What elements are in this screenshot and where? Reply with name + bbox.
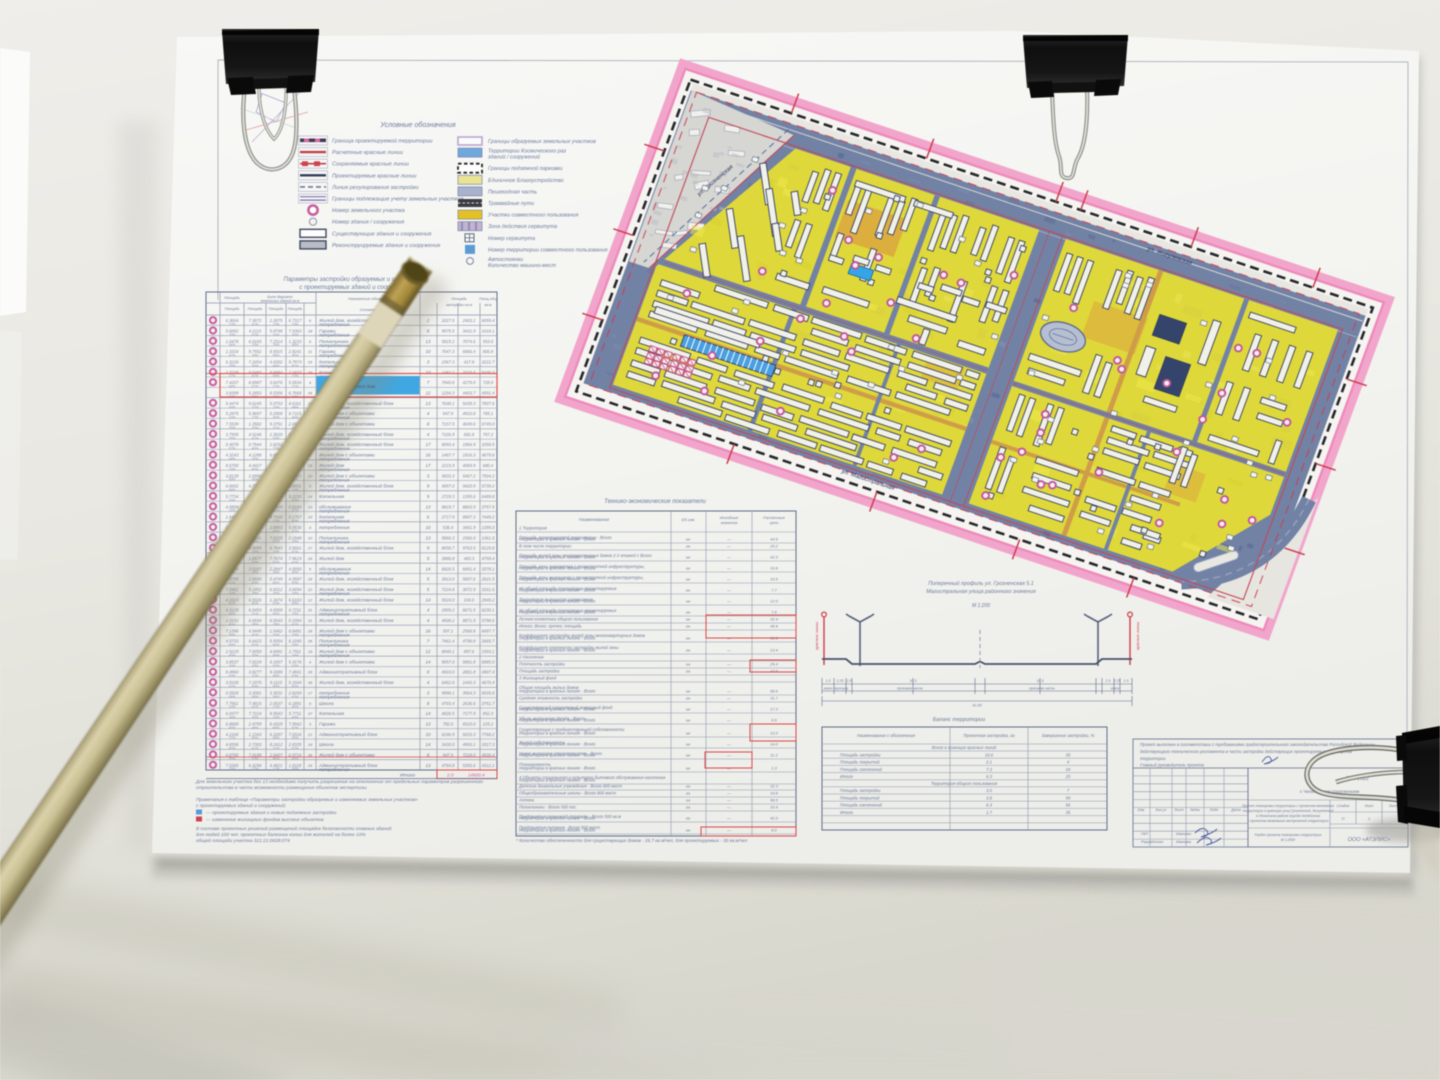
svg-text:6489.8: 6489.8 bbox=[482, 494, 495, 499]
svg-text:21%: 21% bbox=[272, 747, 280, 751]
svg-text:28: 28 bbox=[307, 639, 313, 644]
svg-text:П: П bbox=[1342, 817, 1345, 821]
svg-text:23%: 23% bbox=[291, 633, 299, 637]
svg-text:23%: 23% bbox=[272, 716, 280, 720]
svg-text:30%: 30% bbox=[252, 716, 259, 720]
svg-text:8.0: 8.0 bbox=[771, 828, 777, 833]
svg-text:10: 10 bbox=[425, 525, 431, 530]
svg-text:Главный руководитель проекта: Главный руководитель проекта bbox=[1140, 763, 1205, 768]
svg-text:42%: 42% bbox=[292, 529, 299, 533]
svg-text:35: 35 bbox=[308, 391, 313, 396]
svg-text:72%: 72% bbox=[252, 767, 259, 771]
svg-text:Личная косметика общего пользо: Личная косметика общего пользования bbox=[518, 617, 599, 622]
svg-text:территории в красных линиях -: территории в красных линиях - Всего bbox=[519, 778, 596, 783]
svg-text:78%: 78% bbox=[229, 364, 236, 368]
svg-text:2940.2: 2940.2 bbox=[481, 597, 495, 602]
svg-text:Жилой дом, хозяйственный блок: Жилой дом, хозяйственный блок bbox=[318, 679, 394, 686]
svg-text:8871.9: 8871.9 bbox=[463, 618, 476, 623]
svg-text:79%: 79% bbox=[229, 333, 236, 337]
svg-text:4: 4 bbox=[427, 680, 430, 685]
svg-text:9057.0: 9057.0 bbox=[442, 659, 455, 664]
svg-text:Существующие здания и сооружен: Существующие здания и сооружения bbox=[332, 231, 431, 237]
svg-text:2.5: 2.5 bbox=[846, 679, 852, 683]
svg-text:9: 9 bbox=[427, 494, 430, 499]
svg-text:58%: 58% bbox=[229, 695, 236, 699]
svg-text:45%: 45% bbox=[292, 757, 299, 761]
svg-text:14: 14 bbox=[425, 711, 431, 716]
svg-text:8125.8: 8125.8 bbox=[482, 546, 495, 551]
svg-text:7047.3: 7047.3 bbox=[442, 349, 455, 354]
svg-text:63%: 63% bbox=[292, 695, 299, 699]
svg-text:41%: 41% bbox=[252, 323, 259, 327]
svg-text:6985.0: 6985.0 bbox=[482, 659, 495, 664]
svg-text:1059.5: 1059.5 bbox=[482, 442, 495, 447]
svg-text:28: 28 bbox=[307, 628, 313, 633]
svg-text:5739.2: 5739.2 bbox=[482, 484, 495, 489]
svg-text:32.3: 32.3 bbox=[770, 784, 779, 789]
svg-text:1566.0: 1566.0 bbox=[463, 535, 476, 540]
svg-text:42.0: 42.0 bbox=[770, 816, 779, 821]
svg-text:для людей 100 чел. проектных б: для людей 100 чел. проектных балконах ко… bbox=[196, 831, 366, 838]
svg-text:25: 25 bbox=[1065, 774, 1071, 779]
svg-text:53%: 53% bbox=[252, 757, 259, 761]
svg-text:48%: 48% bbox=[252, 726, 259, 730]
svg-text:31.7: 31.7 bbox=[770, 696, 779, 701]
svg-text:2 Население: 2 Население bbox=[518, 655, 544, 660]
svg-text:Площадь: Площадь bbox=[451, 297, 467, 301]
svg-text:6059.4: 6059.4 bbox=[482, 318, 495, 323]
svg-text:2.25: 2.25 bbox=[1113, 679, 1121, 683]
svg-text:58%: 58% bbox=[273, 695, 280, 699]
svg-text:4: 4 bbox=[427, 618, 430, 623]
svg-text:3564.3: 3564.3 bbox=[463, 690, 476, 695]
svg-text:Поликлиники - Всего 500 пос.: Поликлиники - Всего 500 пос. bbox=[519, 805, 577, 810]
svg-text:11.2: 11.2 bbox=[770, 753, 778, 758]
svg-text:3317.3: 3317.3 bbox=[482, 742, 495, 747]
svg-text:цели: цели bbox=[770, 520, 780, 525]
svg-text:Баланс территории: Баланс территории bbox=[933, 717, 986, 723]
svg-text:680.4: 680.4 bbox=[483, 463, 494, 468]
svg-text:Гаражи: Гаражи bbox=[319, 721, 336, 727]
svg-text:10: 10 bbox=[425, 732, 431, 737]
svg-text:27: 27 bbox=[307, 546, 313, 551]
svg-text:4403.7: 4403.7 bbox=[463, 391, 476, 396]
svg-text:14: 14 bbox=[425, 566, 431, 571]
svg-text:10: 10 bbox=[425, 349, 431, 354]
svg-text:Разработал: Разработал bbox=[1141, 840, 1164, 844]
svg-text:Площадь озеленений: Площадь озеленений bbox=[840, 767, 883, 772]
svg-text:Площадь: Площадь bbox=[288, 307, 303, 311]
svg-text:21%: 21% bbox=[291, 385, 299, 389]
svg-text:потребления: потребления bbox=[319, 343, 350, 349]
svg-text:7940.8: 7940.8 bbox=[442, 380, 455, 385]
svg-text:5866.3: 5866.3 bbox=[442, 535, 455, 540]
svg-text:территории в красных линиях -: территории в красных линиях - Всего bbox=[519, 577, 596, 582]
svg-text:19%: 19% bbox=[292, 654, 299, 658]
svg-text:красные линии: красные линии bbox=[1135, 621, 1140, 650]
svg-text:Трамвайные пути: Трамвайные пути bbox=[488, 200, 534, 207]
svg-text:19%: 19% bbox=[292, 540, 299, 544]
svg-text:82%: 82% bbox=[292, 726, 299, 730]
svg-text:58%: 58% bbox=[292, 602, 299, 606]
svg-text:Проект выполнен в соответствии: Проект выполнен в соответствии с требова… bbox=[1140, 742, 1376, 747]
svg-text:7807.6: 7807.6 bbox=[482, 401, 495, 406]
svg-text:6196.9: 6196.9 bbox=[442, 732, 455, 737]
svg-text:553.6: 553.6 bbox=[483, 339, 494, 344]
svg-text:Площадь покрытий: Площадь покрытий bbox=[840, 795, 880, 800]
svg-text:20.2: 20.2 bbox=[769, 544, 779, 549]
svg-text:6.5: 6.5 bbox=[771, 718, 777, 723]
svg-text:2801.8: 2801.8 bbox=[462, 670, 476, 675]
svg-text:Площадь: Площадь bbox=[225, 307, 240, 311]
svg-text:8093.4: 8093.4 bbox=[442, 442, 455, 447]
svg-text:42.3: 42.3 bbox=[770, 555, 779, 560]
svg-text:41%: 41% bbox=[292, 560, 299, 564]
svg-text:Жилой дом с объектами: Жилой дом с объектами bbox=[318, 752, 375, 759]
svg-text:Лист: Лист bbox=[1364, 804, 1374, 808]
svg-text:536.4: 536.4 bbox=[443, 525, 454, 530]
svg-text:Для земельного участка без 13: Для земельного участка без 13 необходимо… bbox=[195, 779, 483, 785]
svg-text:32%: 32% bbox=[252, 405, 259, 409]
svg-text:Наименование с обозначения: Наименование с обозначения bbox=[857, 733, 916, 738]
svg-text:3222.7: 3222.7 bbox=[482, 360, 495, 365]
svg-text:70%: 70% bbox=[229, 767, 236, 771]
svg-text:4: 4 bbox=[427, 432, 430, 437]
svg-text:потребления: потребления bbox=[319, 525, 350, 531]
svg-text:1984.9: 1984.9 bbox=[463, 442, 476, 447]
svg-text:38%: 38% bbox=[252, 622, 259, 626]
svg-text:8940.1: 8940.1 bbox=[442, 649, 455, 654]
svg-text:1204.3: 1204.3 bbox=[442, 391, 455, 396]
svg-text:территории в красных линиях -: территории в красных линиях - Всего bbox=[519, 599, 596, 604]
svg-text:81%: 81% bbox=[292, 364, 299, 368]
svg-text:3431.9: 3431.9 bbox=[463, 329, 476, 334]
svg-text:1.3: 1.3 bbox=[771, 766, 777, 771]
svg-text:потребления: потребления bbox=[319, 488, 350, 494]
svg-text:2.1: 2.1 bbox=[985, 760, 992, 765]
svg-text:7.6: 7.6 bbox=[771, 610, 777, 615]
svg-text:68%: 68% bbox=[252, 695, 259, 699]
svg-text:территории в красных линиях -: территории в красных линиях - Всего bbox=[519, 648, 596, 653]
svg-text:Площадь покрытий: Площадь покрытий bbox=[840, 760, 880, 765]
svg-text:потребления: потребления bbox=[319, 508, 350, 514]
svg-text:Жилой дом, хозяйственный блок: Жилой дом, хозяйственный блок bbox=[318, 596, 394, 603]
svg-text:4591.4: 4591.4 bbox=[482, 391, 495, 396]
svg-text:13.4: 13.4 bbox=[770, 648, 779, 653]
svg-text:89%: 89% bbox=[273, 685, 280, 689]
svg-text:3886.8: 3886.8 bbox=[442, 556, 455, 561]
svg-text:1027.5: 1027.5 bbox=[442, 318, 455, 323]
svg-text:50%: 50% bbox=[292, 581, 299, 585]
svg-text:Пешеходная часть: Пешеходная часть bbox=[488, 189, 537, 195]
svg-text:Жилой дом, хозяйственный блок: Жилой дом, хозяйственный блок bbox=[318, 617, 394, 624]
svg-text:Итого: Итого bbox=[840, 810, 854, 815]
svg-text:14: 14 bbox=[425, 659, 431, 664]
svg-text:27%: 27% bbox=[272, 385, 280, 389]
svg-text:852.3: 852.3 bbox=[483, 711, 494, 716]
svg-text:8819.7: 8819.7 bbox=[442, 504, 455, 509]
svg-text:8497.7: 8497.7 bbox=[482, 628, 495, 633]
svg-text:104.0: 104.0 bbox=[464, 597, 475, 602]
svg-text:Зона действия сервитута: Зона действия сервитута bbox=[488, 223, 557, 230]
svg-text:16: 16 bbox=[308, 742, 313, 747]
svg-text:12%: 12% bbox=[273, 705, 280, 709]
svg-text:10.5: 10.5 bbox=[1037, 679, 1044, 683]
svg-text:69%: 69% bbox=[252, 685, 259, 689]
svg-text:86%: 86% bbox=[273, 757, 280, 761]
svg-text:40%: 40% bbox=[252, 447, 259, 451]
svg-text:4759.4: 4759.4 bbox=[482, 556, 495, 561]
svg-text:19: 19 bbox=[308, 649, 313, 654]
svg-text:34: 34 bbox=[1066, 767, 1071, 772]
svg-text:1487.7: 1487.7 bbox=[442, 453, 455, 458]
svg-text:17: 17 bbox=[308, 690, 313, 695]
svg-text:Наименование: Наименование bbox=[579, 517, 610, 522]
svg-text:* Количество обеспеченности дл: * Количество обеспеченности для существу… bbox=[516, 838, 748, 843]
svg-text:58%: 58% bbox=[273, 354, 280, 358]
svg-text:64%: 64% bbox=[229, 385, 236, 389]
svg-text:Плотность застройки: Плотность застройки bbox=[519, 662, 566, 667]
svg-text:16.6: 16.6 bbox=[770, 566, 779, 571]
svg-text:3378.1: 3378.1 bbox=[482, 566, 495, 571]
svg-text:7461.4: 7461.4 bbox=[442, 639, 455, 644]
svg-text:8907.3: 8907.3 bbox=[463, 515, 476, 520]
svg-text:Школа: Школа bbox=[319, 701, 334, 707]
svg-text:9420.9: 9420.9 bbox=[463, 484, 476, 489]
svg-text:территории в красных линиях -: территории в красных линиях - Всего bbox=[519, 742, 596, 747]
svg-text:Всего в границах красных линий: Всего в границах красных линий bbox=[932, 745, 997, 750]
svg-text:Номер земельного участка: Номер земельного участка bbox=[332, 208, 405, 214]
svg-text:7449.2: 7449.2 bbox=[482, 515, 495, 520]
svg-text:2.5: 2.5 bbox=[1105, 679, 1111, 683]
svg-text:40%: 40% bbox=[292, 705, 299, 709]
svg-text:60%: 60% bbox=[292, 685, 299, 689]
svg-text:территории в красных линиях -: территории в красных линиях - Всего bbox=[519, 588, 596, 593]
svg-text:897.6: 897.6 bbox=[464, 649, 475, 654]
svg-text:18: 18 bbox=[308, 556, 313, 561]
svg-text:6826.5: 6826.5 bbox=[442, 566, 455, 571]
svg-text:Лист: Лист bbox=[1173, 808, 1183, 812]
svg-text:2403.1: 2403.1 bbox=[462, 318, 476, 323]
svg-text:44%: 44% bbox=[273, 364, 280, 368]
svg-text:2717.9: 2717.9 bbox=[441, 515, 455, 520]
svg-text:8451.4: 8451.4 bbox=[463, 566, 476, 571]
svg-text:76%: 76% bbox=[229, 436, 236, 440]
svg-text:49%: 49% bbox=[292, 416, 299, 420]
svg-text:— изменение жилищных фондов вы: — изменение жилищных фондов высоких объе… bbox=[205, 817, 324, 823]
svg-text:26: 26 bbox=[307, 763, 313, 768]
svg-text:67%: 67% bbox=[292, 747, 299, 751]
svg-text:Изм: Изм bbox=[1138, 808, 1145, 812]
svg-text:13: 13 bbox=[425, 339, 431, 344]
svg-text:2.0: 2.0 bbox=[446, 773, 454, 778]
svg-text:31: 31 bbox=[308, 618, 312, 623]
svg-text:2621.5: 2621.5 bbox=[481, 577, 495, 582]
svg-text:Площадь озеленений: Площадь озеленений bbox=[840, 803, 883, 808]
svg-text:47%: 47% bbox=[229, 354, 236, 358]
svg-text:Итого: Итого bbox=[400, 773, 415, 779]
svg-text:5524.0: 5524.0 bbox=[442, 597, 455, 602]
svg-text:Условные обозначения: Условные обозначения bbox=[379, 121, 456, 129]
svg-text:32.4: 32.4 bbox=[770, 617, 779, 622]
svg-text:потребления: потребления bbox=[319, 591, 350, 597]
svg-text:Жилой дом, хозяйственный блок: Жилой дом, хозяйственный блок bbox=[318, 576, 394, 583]
svg-text:682.8: 682.8 bbox=[464, 432, 475, 437]
svg-text:4993.1: 4993.1 bbox=[463, 742, 476, 747]
svg-text:4679.6: 4679.6 bbox=[482, 453, 495, 458]
svg-text:5355.6: 5355.6 bbox=[463, 763, 476, 768]
svg-text:16: 16 bbox=[425, 628, 431, 633]
svg-text:17: 17 bbox=[425, 463, 431, 468]
svg-text:Иванова: Иванова bbox=[1176, 832, 1191, 836]
svg-text:10%: 10% bbox=[273, 633, 280, 637]
svg-text:37: 37 bbox=[308, 711, 313, 716]
svg-text:Границы подземной парковки: Границы подземной парковки bbox=[488, 165, 563, 172]
svg-text:81%: 81% bbox=[292, 550, 299, 554]
svg-text:16: 16 bbox=[425, 453, 431, 458]
svg-text:72%: 72% bbox=[229, 736, 236, 740]
svg-text:64%: 64% bbox=[229, 457, 236, 461]
svg-text:1395.6: 1395.6 bbox=[463, 494, 476, 499]
svg-text:19%: 19% bbox=[229, 509, 236, 513]
svg-text:газон тротуар: газон тротуар bbox=[824, 686, 849, 690]
svg-text:Участки совместного пользовани: Участки совместного пользования bbox=[487, 213, 579, 219]
svg-text:30%: 30% bbox=[292, 333, 299, 337]
svg-text:территории: территории bbox=[1140, 756, 1166, 761]
svg-text:54%: 54% bbox=[229, 343, 236, 347]
svg-text:63%: 63% bbox=[273, 602, 280, 606]
svg-text:2729.3: 2729.3 bbox=[441, 494, 455, 499]
svg-text:6749.0: 6749.0 bbox=[482, 422, 495, 427]
svg-text:43.6: 43.6 bbox=[770, 669, 779, 674]
svg-text:417.8: 417.8 bbox=[464, 360, 475, 365]
svg-text:Площадь: Площадь bbox=[269, 307, 284, 311]
svg-text:В составе проектных решений ра: В составе проектных решений размещений п… bbox=[196, 825, 392, 832]
svg-text:территории в красных линиях -: территории в красных линиях - Всего bbox=[519, 766, 596, 771]
svg-text:потребления: потребления bbox=[319, 767, 350, 773]
svg-text:72%: 72% bbox=[273, 447, 280, 451]
svg-text:Номер территории совместного п: Номер территории совместного пользования bbox=[488, 247, 608, 253]
svg-text:10%: 10% bbox=[273, 333, 280, 337]
svg-text:Проект планировки территории с: Проект планировки территории с проектом … bbox=[1242, 804, 1334, 808]
svg-text:18%: 18% bbox=[252, 664, 259, 668]
svg-text:1395.0: 1395.0 bbox=[482, 525, 495, 530]
svg-text:общей площади участка 321:21:0: общей площади участка 321:21:0028:074 bbox=[196, 837, 290, 844]
svg-text:69%: 69% bbox=[229, 643, 236, 647]
svg-text:14: 14 bbox=[425, 597, 431, 602]
svg-text:потребления: потребления bbox=[319, 632, 350, 638]
svg-text:5807.6: 5807.6 bbox=[463, 577, 476, 582]
svg-text:Площадь застройки: Площадь застройки bbox=[840, 788, 881, 793]
svg-text:19%: 19% bbox=[229, 467, 236, 471]
svg-text:39%: 39% bbox=[252, 354, 259, 358]
svg-text:23%: 23% bbox=[272, 323, 280, 327]
svg-text:2566.8: 2566.8 bbox=[462, 628, 476, 633]
svg-text:51%: 51% bbox=[252, 612, 259, 616]
svg-text:территории в красных линиях -: территории в красных линиях - Всего bbox=[519, 816, 596, 821]
svg-text:1.5: 1.5 bbox=[1124, 679, 1129, 683]
svg-text:59%: 59% bbox=[229, 633, 236, 637]
svg-text:проезжая часть: проезжая часть bbox=[1029, 686, 1055, 690]
svg-text:территории в красных линиях -: территории в красных линиях - Всего bbox=[519, 636, 596, 641]
svg-text:застройки кв.м: застройки кв.м bbox=[445, 303, 473, 307]
svg-text:56%: 56% bbox=[292, 354, 299, 358]
svg-text:80%: 80% bbox=[252, 602, 259, 606]
svg-text:9: 9 bbox=[427, 484, 430, 489]
svg-text:Количество машино-мест: Количество машино-мест bbox=[488, 263, 556, 269]
svg-text:90%: 90% bbox=[229, 726, 236, 730]
svg-text:4784.8: 4784.8 bbox=[442, 763, 455, 768]
svg-text:Площадь застройки: Площадь застройки bbox=[519, 669, 560, 674]
svg-text:8: 8 bbox=[427, 701, 430, 706]
svg-text:4933.0: 4933.0 bbox=[442, 670, 455, 675]
svg-text:767.2: 767.2 bbox=[483, 432, 494, 437]
svg-text:68%: 68% bbox=[273, 736, 280, 740]
svg-text:Площадь застройки: Площадь застройки bbox=[840, 752, 881, 757]
svg-text:потребления: потребления bbox=[319, 539, 350, 545]
svg-text:73%: 73% bbox=[292, 374, 299, 378]
svg-text:потребления: потребления bbox=[319, 477, 350, 483]
svg-text:7177.9: 7177.9 bbox=[463, 711, 476, 716]
svg-text:24%: 24% bbox=[228, 716, 236, 720]
svg-text:13: 13 bbox=[425, 535, 431, 540]
svg-text:потребления: потребления bbox=[319, 322, 350, 328]
svg-text:2909.2: 2909.2 bbox=[441, 608, 455, 613]
svg-text:Жилой дом с объектами: Жилой дом с объектами bbox=[318, 658, 375, 665]
svg-text:26%: 26% bbox=[228, 426, 236, 430]
svg-text:45%: 45% bbox=[229, 654, 236, 658]
svg-text:3751.7: 3751.7 bbox=[482, 701, 495, 706]
svg-text:40%: 40% bbox=[229, 622, 236, 626]
svg-text:3161.6: 3161.6 bbox=[482, 587, 495, 592]
svg-text:4049.6: 4049.6 bbox=[463, 422, 476, 427]
svg-text:5798.6: 5798.6 bbox=[482, 618, 495, 623]
svg-text:483.3: 483.3 bbox=[464, 556, 475, 561]
svg-text:4279.0: 4279.0 bbox=[463, 380, 476, 385]
svg-text:Номер здания / сооружения: Номер здания / сооружения bbox=[332, 220, 404, 226]
svg-text:58.5: 58.5 bbox=[770, 798, 779, 803]
svg-text:53%: 53% bbox=[273, 436, 280, 440]
svg-text:44.9: 44.9 bbox=[770, 537, 779, 542]
svg-text:Границы подлежащие учету земел: Границы подлежащие учету земельных участ… bbox=[332, 197, 464, 203]
svg-text:41%: 41% bbox=[252, 633, 259, 637]
svg-text:8: 8 bbox=[427, 329, 430, 334]
svg-text:66%: 66% bbox=[273, 612, 280, 616]
svg-text:22: 22 bbox=[307, 587, 313, 592]
svg-text:1593.1: 1593.1 bbox=[482, 649, 495, 654]
svg-text:Площ общ: Площ общ bbox=[479, 297, 497, 301]
svg-text:12%: 12% bbox=[273, 767, 280, 771]
svg-text:6.3: 6.3 bbox=[986, 774, 992, 779]
svg-text:5881.8: 5881.8 bbox=[463, 659, 476, 664]
svg-text:зданий / сооружений: зданий / сооружений bbox=[487, 154, 540, 161]
svg-text:газон: газон bbox=[1111, 686, 1120, 690]
svg-text:12.0: 12.0 bbox=[770, 731, 779, 736]
svg-text:9: 9 bbox=[427, 546, 430, 551]
svg-text:4: 4 bbox=[427, 608, 430, 613]
svg-text:10.6: 10.6 bbox=[985, 752, 994, 757]
svg-text:5833.3: 5833.3 bbox=[442, 473, 455, 478]
svg-text:проезжая часть: проезжая часть bbox=[897, 686, 923, 690]
svg-text:4026.5: 4026.5 bbox=[442, 711, 455, 716]
svg-text:8: 8 bbox=[427, 422, 430, 427]
svg-text:8658.7: 8658.7 bbox=[442, 546, 455, 551]
svg-text:597.1: 597.1 bbox=[443, 628, 453, 633]
svg-text:28: 28 bbox=[307, 329, 313, 334]
svg-text:7: 7 bbox=[427, 639, 430, 644]
svg-text:86%: 86% bbox=[273, 581, 280, 585]
svg-text:3.0: 3.0 bbox=[986, 788, 992, 793]
